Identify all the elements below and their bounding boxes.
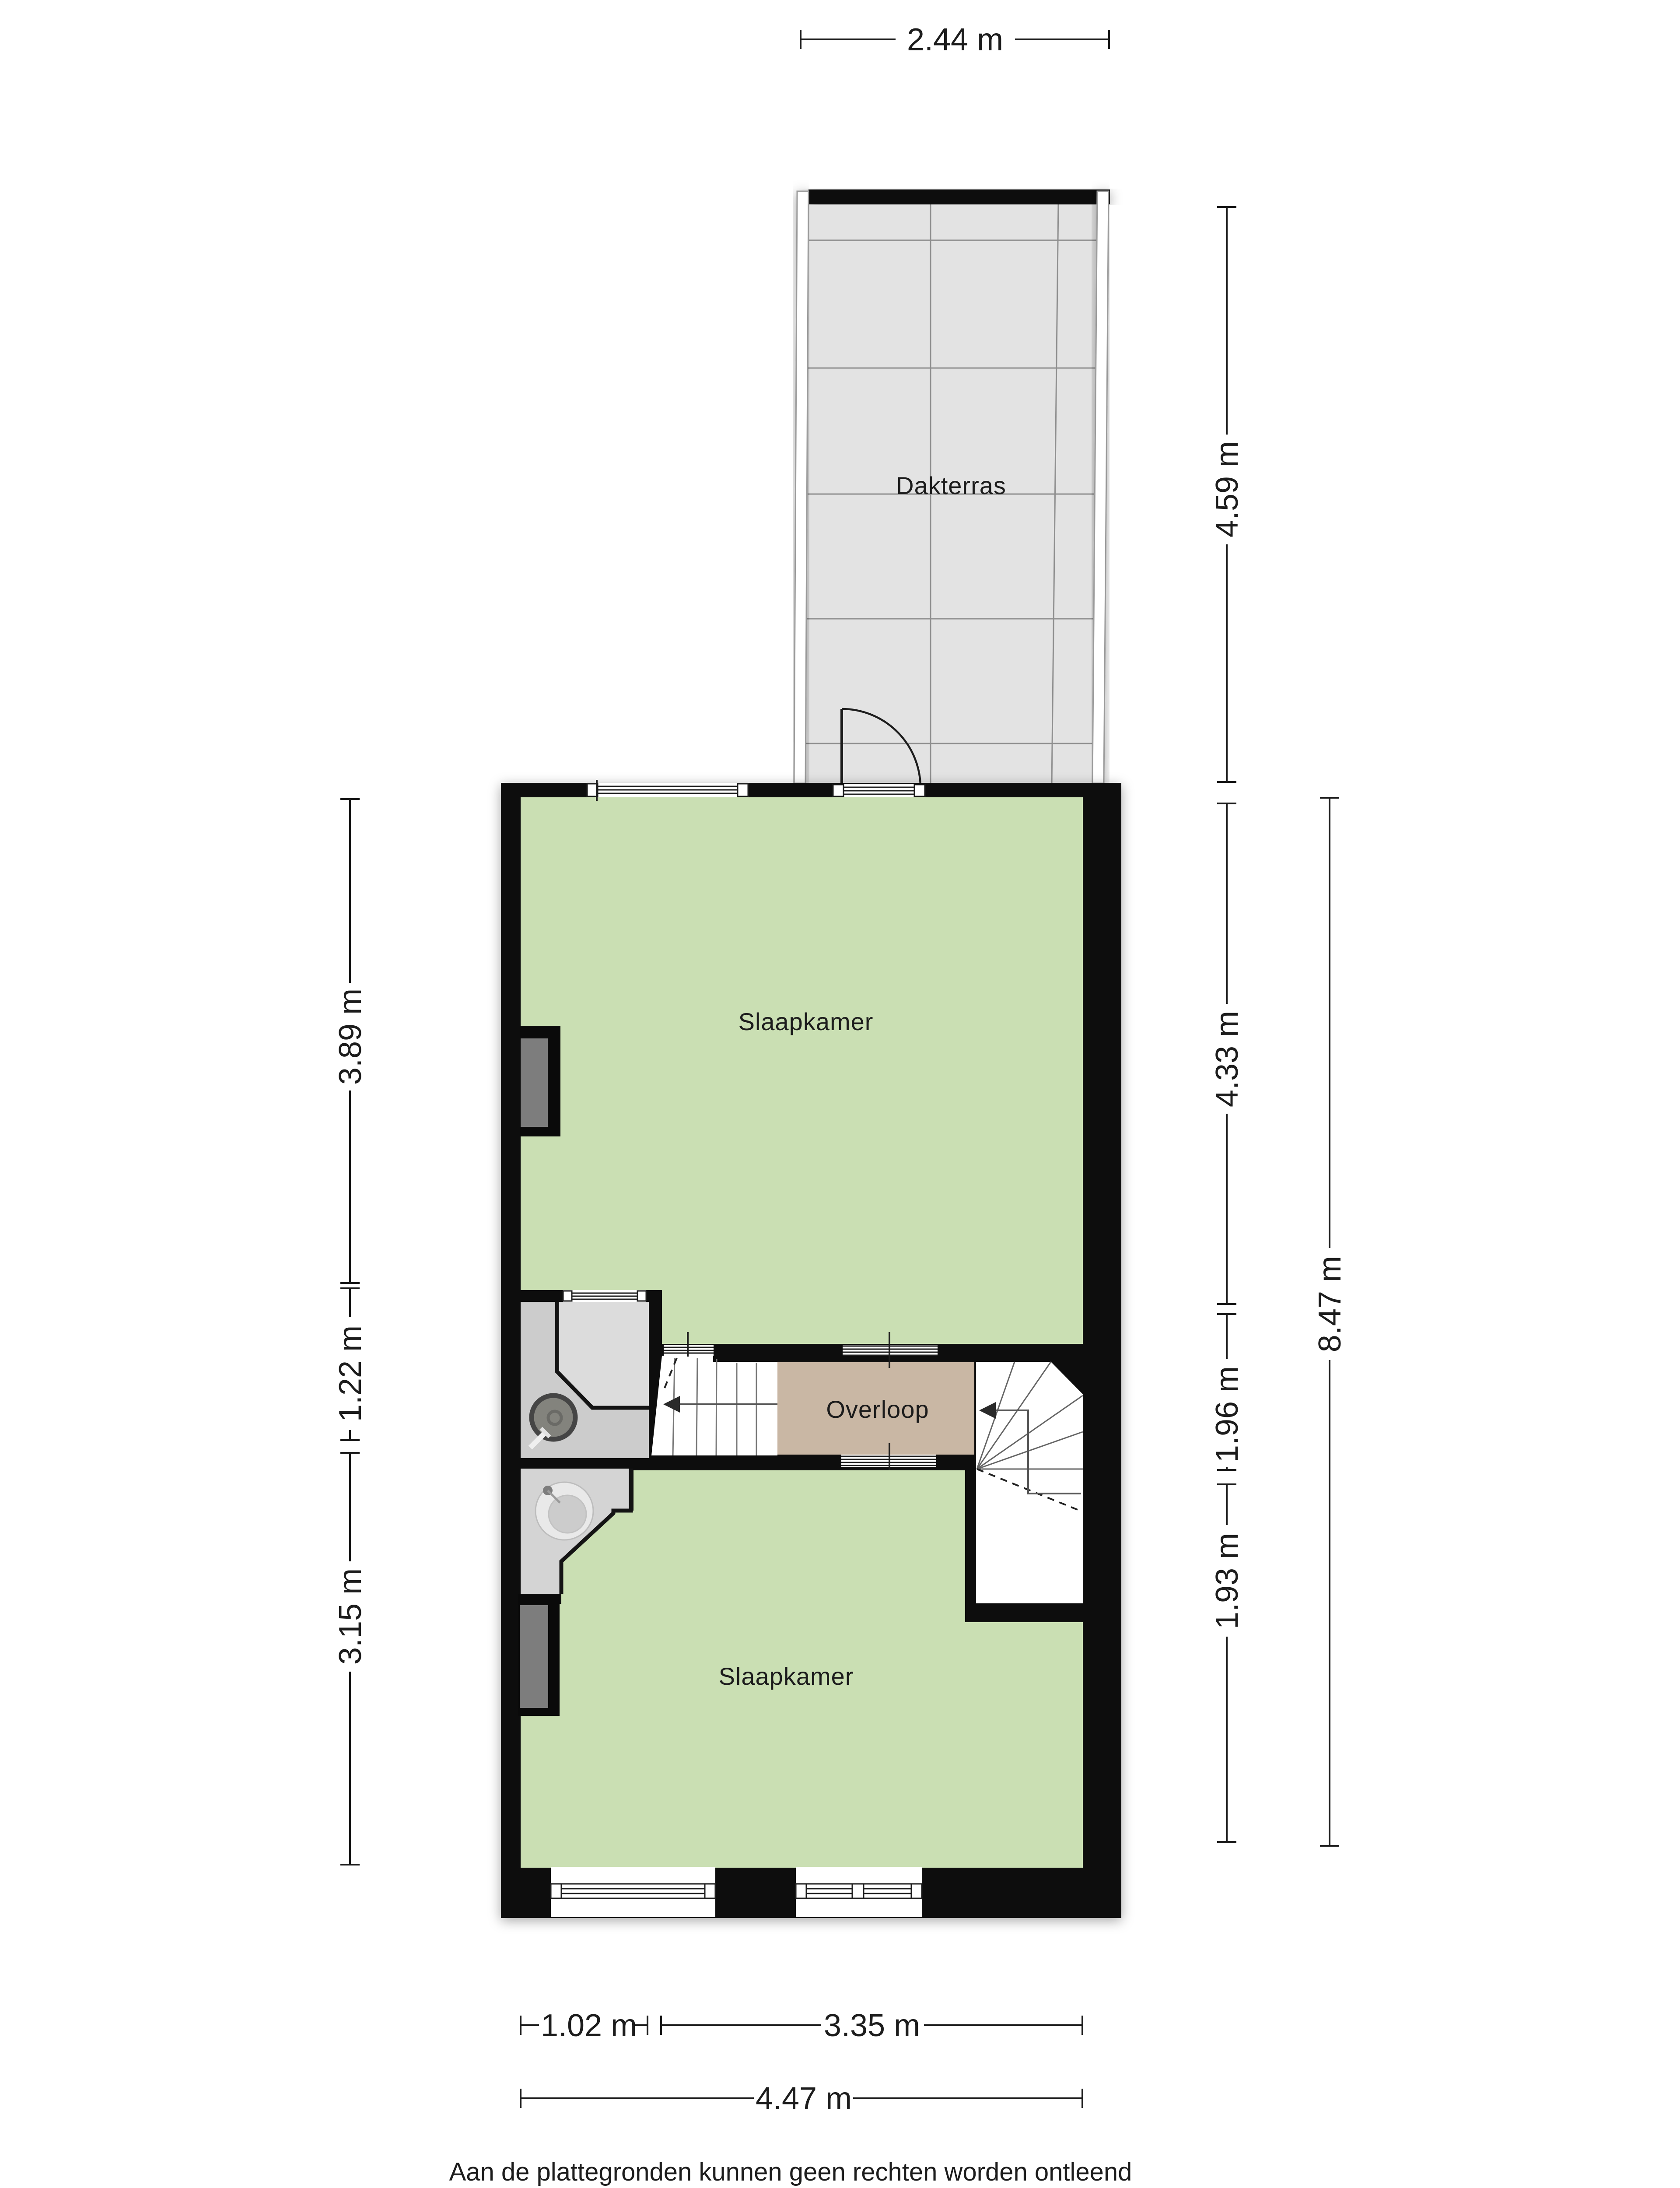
svg-text:8.47 m: 8.47 m	[1312, 1256, 1347, 1352]
svg-text:1.96 m: 1.96 m	[1210, 1366, 1245, 1462]
svg-text:Slaapkamer: Slaapkamer	[719, 1662, 854, 1690]
svg-text:Overloop: Overloop	[826, 1396, 929, 1423]
svg-text:1.02 m: 1.02 m	[541, 2008, 637, 2043]
svg-text:Aan de plattegronden kunnen ge: Aan de plattegronden kunnen geen rechten…	[449, 2158, 1132, 2186]
svg-text:4.47 m: 4.47 m	[756, 2081, 852, 2116]
svg-text:2.44 m: 2.44 m	[907, 22, 1003, 57]
svg-text:Dakterras: Dakterras	[896, 472, 1006, 499]
svg-text:4.33 m: 4.33 m	[1210, 1011, 1245, 1107]
svg-text:3.35 m: 3.35 m	[824, 2008, 920, 2043]
svg-text:1.22 m: 1.22 m	[333, 1325, 368, 1422]
svg-text:1.93 m: 1.93 m	[1210, 1533, 1245, 1629]
svg-text:3.89 m: 3.89 m	[333, 989, 368, 1085]
svg-text:4.59 m: 4.59 m	[1210, 441, 1245, 537]
svg-text:3.15 m: 3.15 m	[333, 1568, 368, 1665]
svg-text:Slaapkamer: Slaapkamer	[738, 1008, 874, 1035]
